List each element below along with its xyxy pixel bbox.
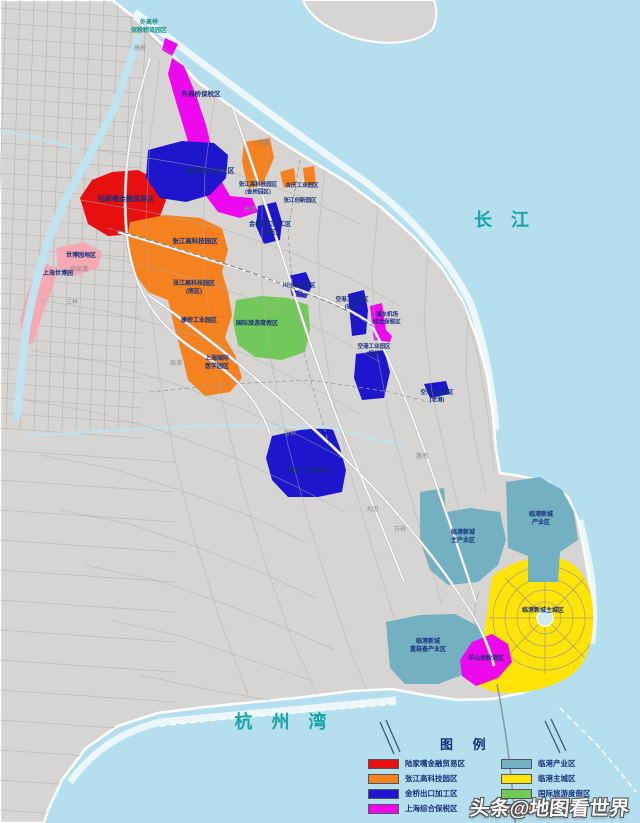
legend-swatch	[368, 804, 399, 814]
label-yangshan: 洋山保税港区	[468, 654, 504, 662]
town-label: 周浦	[170, 359, 182, 367]
label-zhangjiang: 张江高科技园区	[172, 236, 218, 245]
legend-swatch	[368, 774, 399, 784]
label-nanhui-industrial: 南汇工业园区	[289, 465, 329, 474]
label-zhangjiang-innovation: 张江创新园区	[283, 196, 317, 204]
legend-swatch	[501, 759, 532, 769]
legend-label: 临港主城区	[538, 773, 576, 784]
label-waigaoqiao-ftz: 外高桥保税区	[182, 89, 222, 98]
water-label-changjiang: 长 江	[474, 210, 536, 230]
legend-label: 张江高科技园区	[405, 773, 458, 784]
town-label: 万祥	[394, 525, 406, 533]
legend-swatch	[501, 774, 532, 784]
legend-item: 张江高科技园区	[368, 774, 501, 783]
town-label: 川沙	[295, 292, 307, 299]
label-kangqiao: 康桥工业园区	[180, 316, 217, 324]
watermark: 头条@地图看世界	[468, 792, 631, 821]
legend-swatch	[368, 789, 399, 799]
legend-item: 陆家嘴金融贸易区	[368, 759, 501, 768]
legend-item: 临港主城区	[501, 774, 634, 783]
town-label: 三林	[66, 298, 78, 306]
legend-item: 临港产业区	[501, 759, 634, 768]
map-canvas: 高桥曹路唐镇川沙周家渡三林周浦宣桥大团万祥惠南 外高桥保税物流园区外高桥保税区陆…	[0, 0, 640, 823]
map-stage: 高桥曹路唐镇川沙周家渡三林周浦宣桥大团万祥惠南 外高桥保税物流园区外高桥保税区陆…	[0, 0, 640, 823]
label-heqing: 合庆工业园区	[285, 181, 319, 189]
town-label: 曹路	[258, 139, 270, 147]
label-lingang-city: 临港新城主城区	[522, 606, 564, 614]
legend-label: 上海综合保税区	[405, 803, 458, 814]
legend-title: 图 例	[440, 734, 640, 753]
label-expo-park: 上海世博园	[43, 269, 73, 277]
label-tourism-resort: 国际旅游度假区	[236, 319, 278, 327]
legend-label: 临港产业区	[538, 758, 576, 769]
label-jinqiao: 金桥出口加工区	[185, 166, 235, 175]
label-lujiazui: 陆家嘴金融贸易区	[98, 194, 154, 203]
label-pudong-airport-ftz: 浦东机场综合保税区	[373, 310, 401, 326]
label-expo-area: 世博园地区	[66, 251, 96, 259]
legend-label: 金桥出口加工区	[405, 788, 458, 799]
legend-swatch	[368, 759, 399, 769]
water-label-hangzhouwan: 杭 州 湾	[234, 711, 333, 732]
town-label: 惠南	[416, 452, 428, 460]
town-label: 唐镇	[244, 205, 256, 213]
town-label: 宣桥	[284, 429, 296, 437]
town-label: 高桥	[134, 44, 146, 52]
label-chuansha-park: 川沙经济园区	[281, 281, 316, 289]
town-label: 大团	[366, 505, 378, 513]
legend-label: 陆家嘴金融贸易区	[405, 758, 465, 769]
